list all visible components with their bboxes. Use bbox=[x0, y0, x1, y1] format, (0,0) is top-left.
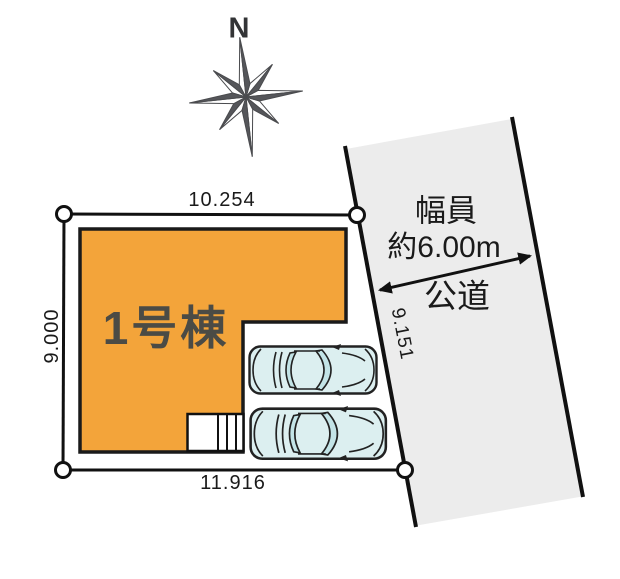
road-name-label: 公道 bbox=[424, 280, 490, 313]
dimension-left-label: 9.000 bbox=[42, 308, 62, 363]
plot-left-boundary-line bbox=[63, 214, 64, 470]
site-plan-drawing bbox=[0, 0, 620, 579]
corner-marker bbox=[56, 463, 71, 478]
building-1-label: 1号棟 bbox=[103, 305, 230, 351]
car-icon bbox=[251, 406, 386, 461]
site-plan: N 10.254 9.000 11.916 9.151 1号棟 幅員 約6.00… bbox=[0, 0, 620, 579]
entrance-steps-icon bbox=[188, 414, 244, 451]
dimension-bottom-label: 11.916 bbox=[200, 473, 266, 493]
plot-top-boundary-line bbox=[64, 214, 357, 215]
corner-marker bbox=[350, 208, 365, 223]
dimension-top-label: 10.254 bbox=[188, 190, 255, 210]
corner-marker bbox=[57, 207, 72, 222]
compass-rose-icon bbox=[183, 31, 309, 162]
car-icon bbox=[250, 344, 377, 396]
corner-marker bbox=[398, 463, 413, 478]
compass-north-label: N bbox=[229, 15, 250, 44]
road-width-caption: 幅員 bbox=[415, 196, 477, 227]
road-width-value: 約6.00m bbox=[387, 233, 500, 263]
